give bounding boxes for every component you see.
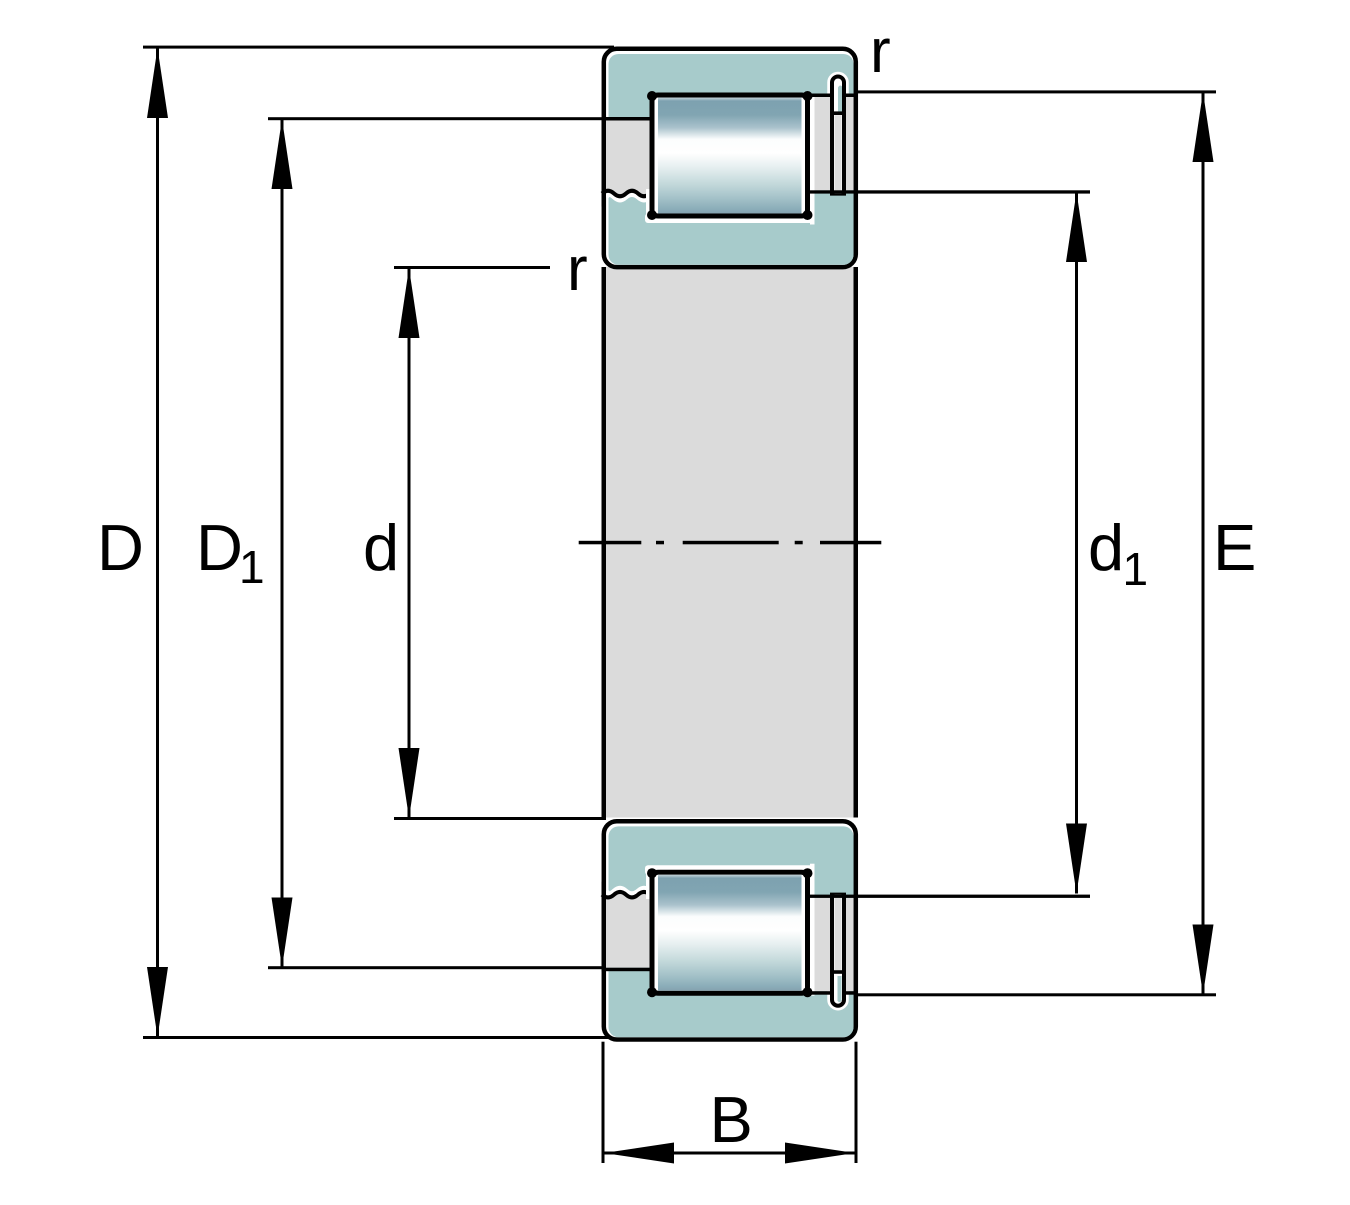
svg-text:d: d	[363, 511, 399, 584]
svg-text:1: 1	[239, 541, 265, 593]
svg-text:D: D	[97, 511, 144, 584]
svg-text:B: B	[710, 1083, 753, 1156]
svg-text:1: 1	[1123, 543, 1149, 595]
svg-text:d: d	[1088, 511, 1124, 584]
svg-text:r: r	[567, 235, 588, 304]
svg-text:E: E	[1213, 511, 1256, 584]
svg-text:D: D	[196, 511, 243, 584]
svg-text:r: r	[870, 17, 891, 86]
